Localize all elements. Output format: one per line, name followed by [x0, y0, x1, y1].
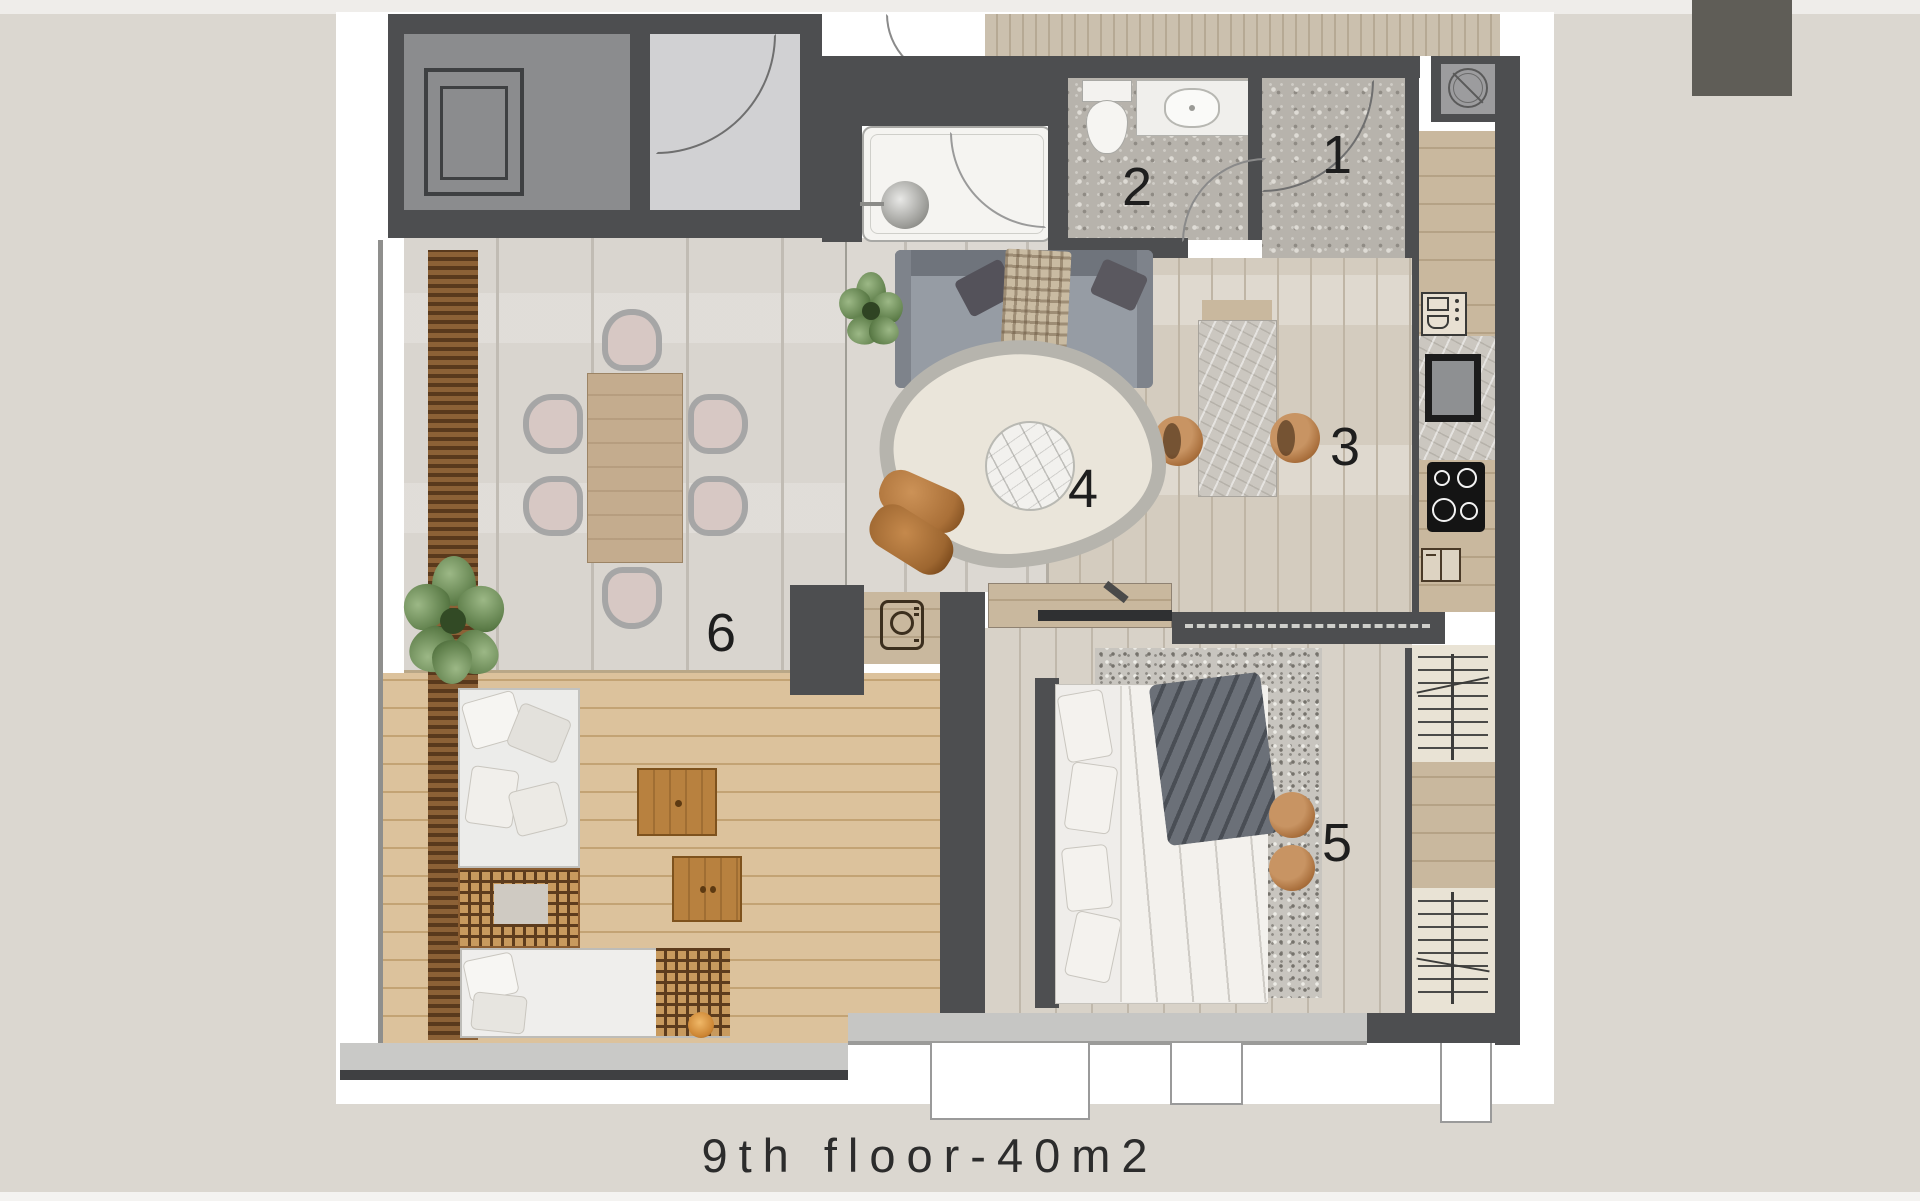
bedroom-pouf-2	[1269, 845, 1315, 891]
sliding-door-band	[1172, 612, 1445, 644]
room-label-2: 2	[1122, 160, 1152, 214]
bed-blanket	[1149, 672, 1280, 846]
bed-pillow-3	[1061, 844, 1113, 912]
plant-terrace	[402, 556, 506, 690]
shower-head-icon	[881, 181, 929, 229]
room-label-6: 6	[706, 606, 736, 660]
room-label-5: 5	[1322, 816, 1352, 870]
core-bottom-wall	[388, 210, 822, 238]
dining-chair-bottom	[602, 567, 662, 629]
island-wood-cap	[1202, 300, 1272, 322]
cabinet-left-edge	[1412, 131, 1419, 612]
terrace-bedroom-wall	[940, 592, 985, 1013]
dining-chair-top	[602, 309, 662, 371]
wardrobe-rail-icon-bottom	[1418, 892, 1488, 1004]
tub-top-wall-block	[822, 56, 1055, 126]
tub-bath-wall	[1048, 78, 1068, 258]
coffee-table	[985, 421, 1075, 511]
tall-cabinet	[1419, 131, 1495, 287]
sliding-door-dash	[1185, 624, 1430, 628]
bedroom-bottom-line	[848, 1041, 1367, 1045]
corner-tab	[1692, 0, 1792, 96]
candle-lantern	[688, 1012, 714, 1038]
dining-chair-right-2	[688, 476, 748, 536]
shower-arm	[860, 202, 884, 206]
washing-machine-icon	[880, 600, 924, 650]
room-label-1: 1	[1322, 128, 1352, 182]
oven-microwave-icon	[1421, 292, 1467, 336]
sink-unit-icon	[1425, 354, 1481, 422]
bedroom-sill	[848, 1013, 1367, 1043]
window-bay-1	[930, 1043, 1090, 1120]
window-bay-3	[1440, 1043, 1492, 1123]
divider-corner-wall	[790, 585, 864, 695]
bedroom-pouf-1	[1269, 792, 1315, 838]
deck-table-2	[672, 856, 742, 922]
core-top-wall	[388, 14, 822, 34]
right-outer-wall	[1495, 56, 1520, 1045]
dining-chair-left-1	[523, 394, 583, 454]
dining-table	[587, 373, 683, 563]
room-label-4: 4	[1068, 462, 1098, 516]
wardrobe-rail-icon-top	[1418, 654, 1488, 760]
bottom-right-wall	[1367, 1013, 1520, 1043]
plant-living	[838, 272, 904, 350]
wardrobe-shelf-block	[1412, 762, 1495, 888]
bottom-strip	[0, 1192, 1920, 1201]
wardrobe-left-edge	[1405, 648, 1412, 1013]
landing-right-wall	[800, 14, 822, 238]
terrace-corner-table	[458, 868, 580, 948]
deck-table-1	[637, 768, 717, 836]
tv-console	[988, 583, 1172, 628]
bar-stool-right-shadow	[1277, 420, 1295, 456]
terrace-bottom-line	[340, 1070, 848, 1080]
terrace-sill	[340, 1043, 848, 1070]
dishwasher-icon	[1421, 548, 1461, 582]
top-wood-band	[985, 14, 1500, 56]
bar-stool-left-shadow	[1163, 423, 1181, 459]
kitchen-island	[1198, 320, 1277, 497]
room-label-3: 3	[1330, 420, 1360, 474]
bed-pillow-2	[1063, 761, 1118, 835]
window-bay-2	[1170, 1043, 1243, 1105]
toilet-tank	[1082, 80, 1132, 102]
elevator-icon-inner	[440, 86, 508, 180]
sink-drain-dot	[1189, 105, 1195, 111]
plan-caption: 9th floor-40m2	[400, 1128, 1460, 1183]
tv-bar	[1038, 610, 1172, 621]
elevator-landing-wall	[630, 14, 650, 238]
core-left-wall	[388, 14, 404, 238]
tub-left-wall	[822, 126, 862, 242]
terrace-parapet-line	[378, 240, 383, 1080]
dining-chair-left-2	[523, 476, 583, 536]
terrace-sofa	[458, 688, 580, 868]
cooktop-icon	[1427, 462, 1485, 532]
dining-chair-right-1	[688, 394, 748, 454]
